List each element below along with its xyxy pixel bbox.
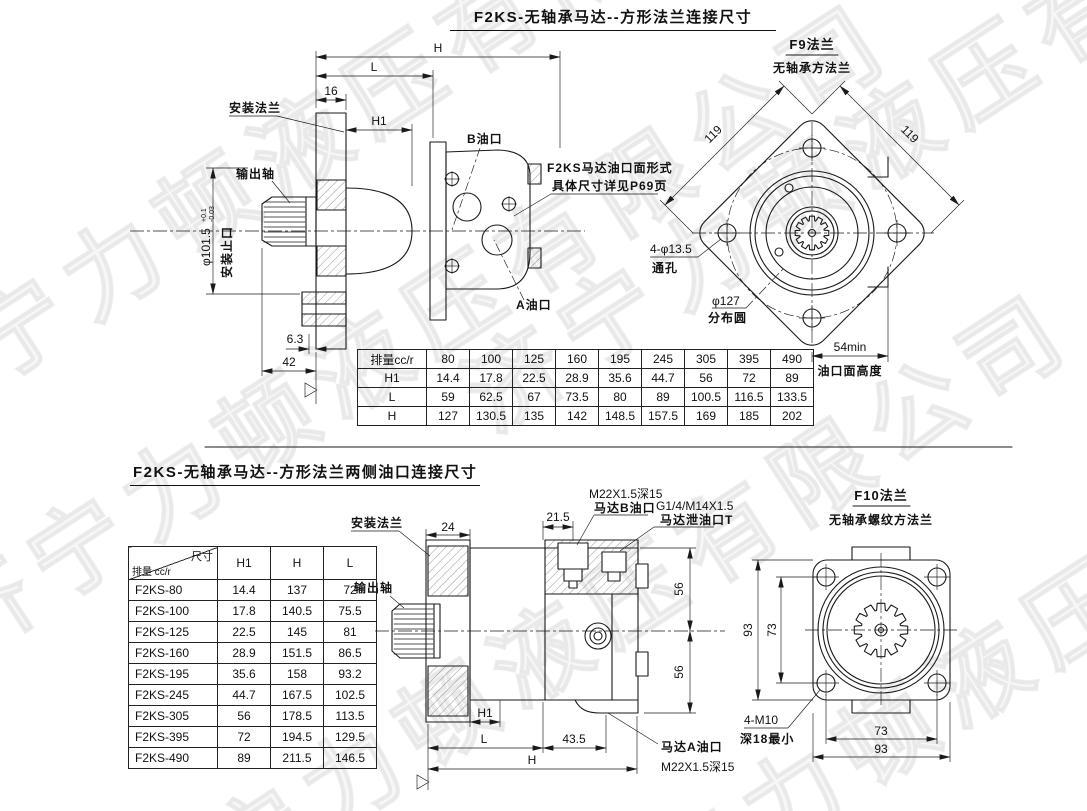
section2-title: F2KS-无轴承马达--方形法兰两侧油口连接尺寸 — [130, 461, 480, 486]
cell: 14.4 — [218, 580, 271, 601]
cell: 102.5 — [324, 685, 377, 706]
cell: 142 — [556, 407, 599, 426]
cell: 133.5 — [771, 388, 814, 407]
cell: 56 — [218, 706, 271, 727]
col-header: 245 — [642, 350, 685, 369]
row-header: L — [358, 388, 427, 407]
dim-119-right: 119 — [898, 122, 922, 146]
cell: 211.5 — [271, 748, 324, 769]
cell: 72 — [218, 727, 271, 748]
mount-flange-label: 安装法兰 — [229, 100, 281, 115]
row-header: F2KS-245 — [129, 685, 218, 706]
cell: 178.5 — [271, 706, 324, 727]
dim-H1-label-2: H1 — [477, 706, 493, 720]
cell: 75.5 — [324, 601, 377, 622]
dim-L-label-2: L — [481, 732, 488, 746]
cell: 89 — [642, 388, 685, 407]
col-header: 排量cc/r — [358, 350, 427, 369]
dim-93-bottom: 93 — [874, 742, 888, 756]
row-header: F2KS-395 — [129, 727, 218, 748]
col-header: H — [271, 547, 324, 580]
port-face-note-line2: 具体尺寸详见P69页 — [552, 178, 667, 193]
cell: 22.5 — [218, 622, 271, 643]
flange-dimension-table: 排量cc/r 80 100 125 160 195 245 305 395 49… — [357, 349, 814, 426]
cell: 100.5 — [685, 388, 728, 407]
table-row: 排量cc/r 80 100 125 160 195 245 305 395 49… — [358, 350, 814, 369]
cell: 81 — [324, 622, 377, 643]
dim-56-top: 56 — [672, 582, 686, 596]
cell: 59 — [427, 388, 470, 407]
cell: 28.9 — [218, 643, 271, 664]
cell: 17.8 — [470, 369, 513, 388]
table-row: F2KS-16028.9151.586.5 — [129, 643, 377, 664]
col-header: 195 — [599, 350, 642, 369]
dim-6-3-label: 6.3 — [287, 332, 304, 346]
f9-title: F9法兰 — [789, 37, 834, 52]
col-header: 80 — [427, 350, 470, 369]
port-a-label: A油口 — [516, 297, 552, 312]
spigot-tolerance-lower: -0.03 — [209, 206, 216, 222]
cell: 113.5 — [324, 706, 377, 727]
dim-93-left: 93 — [741, 623, 755, 637]
f9-bolt-circle-label2: 分布圆 — [708, 310, 747, 325]
diag-top-label: 尺寸 — [191, 548, 213, 564]
cell: 129.5 — [324, 727, 377, 748]
dim-56-bottom: 56 — [672, 665, 686, 679]
cell: 151.5 — [271, 643, 324, 664]
table-row: F2KS-12522.514581 — [129, 622, 377, 643]
port-face-height-label: 油口面高度 — [817, 363, 882, 378]
row-header: F2KS-100 — [129, 601, 218, 622]
cell: 44.7 — [642, 369, 685, 388]
table-row: F2KS-19535.615893.2 — [129, 664, 377, 685]
table-row: F2KS-39572194.5129.5 — [129, 727, 377, 748]
diag-bottom-label: 排量 cc/r — [132, 563, 171, 578]
diagonal-header-cell: 尺寸 排量 cc/r — [129, 547, 218, 580]
row-header: F2KS-125 — [129, 622, 218, 643]
cell: 89 — [771, 369, 814, 388]
cell: 194.5 — [271, 727, 324, 748]
dim-H1-label: H1 — [371, 114, 387, 128]
table-row: F2KS-49089211.5146.5 — [129, 748, 377, 769]
dim-119-left: 119 — [701, 122, 725, 146]
cell: 137 — [271, 580, 324, 601]
cell: 130.5 — [470, 407, 513, 426]
col-header: 160 — [556, 350, 599, 369]
table-row: F2KS-8014.413772 — [129, 580, 377, 601]
cell: 185 — [728, 407, 771, 426]
f9-holes-label: 4-φ13.5 — [650, 242, 692, 256]
f10-subtitle: 无轴承螺纹方法兰 — [828, 512, 933, 527]
port-a-thread-label: M22X1.5深15 — [661, 760, 735, 774]
dim-43-5-label: 43.5 — [562, 732, 586, 746]
row-header: F2KS-160 — [129, 643, 218, 664]
table-row: F2KS-30556178.5113.5 — [129, 706, 377, 727]
cell: 135 — [513, 407, 556, 426]
row-header: F2KS-80 — [129, 580, 218, 601]
port-b-thread-label: M22X1.5深15 — [589, 487, 663, 501]
port-face-note-line1: F2KS马达油口面形式 — [547, 160, 673, 175]
table-row: 尺寸 排量 cc/r H1 H L — [129, 547, 377, 580]
cell: 169 — [685, 407, 728, 426]
port-a-name-label: 马达A油口 — [661, 739, 723, 754]
section1-title: F2KS-无轴承马达--方形法兰连接尺寸 — [450, 6, 776, 31]
spigot-label: 安装止口 — [219, 226, 234, 278]
table-row: H1 14.4 17.8 22.5 28.9 35.6 44.7 56 72 8… — [358, 369, 814, 388]
col-header: 100 — [470, 350, 513, 369]
cell: 67 — [513, 388, 556, 407]
cell: 140.5 — [271, 601, 324, 622]
cell: 167.5 — [271, 685, 324, 706]
cell: 73.5 — [556, 388, 599, 407]
row-header: H1 — [358, 369, 427, 388]
f9-bolt-circle-label: φ127 — [712, 294, 740, 308]
cell: 28.9 — [556, 369, 599, 388]
cell: 146.5 — [324, 748, 377, 769]
cell: 86.5 — [324, 643, 377, 664]
table-row: H 127 130.5 135 142 148.5 157.5 169 185 … — [358, 407, 814, 426]
cell: 89 — [218, 748, 271, 769]
f9-flange-view: F9法兰 无轴承方法兰 119 119 4-φ13.5 通孔 φ127 分布圆 … — [650, 37, 964, 378]
cell: 145 — [271, 622, 324, 643]
dim-L-label: L — [371, 60, 378, 74]
table-row: F2KS-10017.8140.575.5 — [129, 601, 377, 622]
cell: 72 — [728, 369, 771, 388]
col-header: L — [324, 547, 377, 580]
row-header: F2KS-490 — [129, 748, 218, 769]
table-row: F2KS-24544.7167.5102.5 — [129, 685, 377, 706]
cell: 35.6 — [218, 664, 271, 685]
dim-24-label: 24 — [441, 520, 455, 534]
col-header: H1 — [218, 547, 271, 580]
drain-name-label: 马达泄油口T — [660, 512, 733, 527]
dim-73-left: 73 — [765, 623, 779, 637]
f9-subtitle: 无轴承方法兰 — [772, 60, 851, 75]
cell: 35.6 — [599, 369, 642, 388]
f10-holes-label2: 深18最小 — [740, 731, 794, 746]
row-header: F2KS-195 — [129, 664, 218, 685]
f9-holes-label2: 通孔 — [652, 260, 678, 275]
port-b-name-label: 马达B油口 — [594, 500, 656, 515]
cell: 116.5 — [728, 388, 771, 407]
row-header: H — [358, 407, 427, 426]
col-header: 125 — [513, 350, 556, 369]
cell: 202 — [771, 407, 814, 426]
cell: 14.4 — [427, 369, 470, 388]
drain-thread-label: G1/4/M14X1.5 — [656, 499, 734, 513]
cell: 158 — [271, 664, 324, 685]
output-shaft-label: 输出轴 — [236, 166, 275, 181]
cell: 157.5 — [642, 407, 685, 426]
cell: 22.5 — [513, 369, 556, 388]
dim-21-5-label: 21.5 — [546, 510, 570, 524]
dim-73-bottom: 73 — [874, 724, 888, 738]
col-header: 305 — [685, 350, 728, 369]
cell: 62.5 — [470, 388, 513, 407]
f10-title: F10法兰 — [854, 488, 907, 503]
drawing-page: 济宁力顿液压有限公司 济宁力顿液压有限公司 济宁力顿液压有限公司 济宁力顿液压有… — [0, 0, 1087, 811]
col-header: 395 — [728, 350, 771, 369]
dim-H-label: H — [434, 41, 443, 55]
col-header: 490 — [771, 350, 814, 369]
dim-16-label: 16 — [324, 84, 338, 98]
table-row: L 59 62.5 67 73.5 80 89 100.5 116.5 133.… — [358, 388, 814, 407]
f10-flange-view: F10法兰 无轴承螺纹方法兰 93 73 73 93 4-M10 深18最小 — [740, 488, 958, 762]
model-dimension-table: 尺寸 排量 cc/r H1 H L F2KS-8014.413772 F2KS-… — [128, 546, 377, 769]
cell: 93.2 — [324, 664, 377, 685]
row-header: F2KS-305 — [129, 706, 218, 727]
cell: 127 — [427, 407, 470, 426]
cell: 148.5 — [599, 407, 642, 426]
cell: 17.8 — [218, 601, 271, 622]
port-b-label: B油口 — [467, 131, 503, 146]
spigot-tolerance-upper: +0.1 — [201, 208, 208, 222]
mount-flange-label-2: 安装法兰 — [351, 515, 403, 530]
dim-H-label-2: H — [528, 753, 537, 767]
dim-42-label: 42 — [282, 355, 296, 369]
dim-54min: 54min — [834, 340, 867, 354]
cell: 56 — [685, 369, 728, 388]
spigot-diameter-label: φ101.5 — [199, 228, 213, 266]
cell: 80 — [599, 388, 642, 407]
cell: 72 — [324, 580, 377, 601]
cell: 44.7 — [218, 685, 271, 706]
f10-holes-label: 4-M10 — [744, 713, 778, 727]
motor-side-view-bottom: 安装法兰 输出轴 24 21.5 M22X1.5深15 马达B油口 G1/4/M… — [351, 487, 735, 790]
